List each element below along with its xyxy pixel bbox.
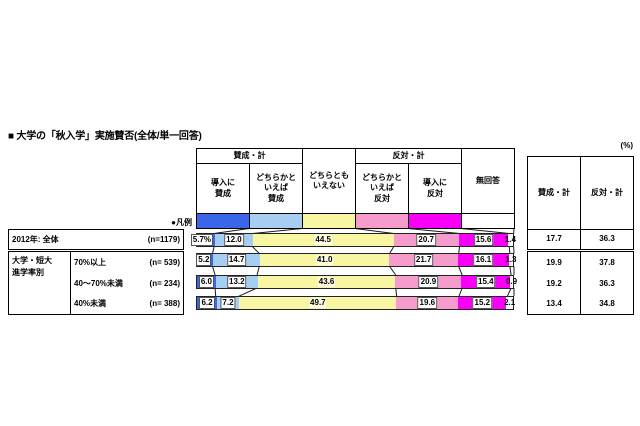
bar-segment-intro-oppose: 15.4 [461,276,510,288]
segment-value: 16.1 [474,254,494,266]
bar-segment-somewhat-oppose: 20.9 [395,276,461,288]
segment-value: 41.0 [316,255,334,265]
row-label-box-3: 40%未満(n= 388) [71,293,183,314]
bar-segment-no-answer: 1.4 [508,234,512,246]
legend-swatch-somewhat-oppose [355,213,409,229]
bar-segment-somewhat-agree: 7.2 [217,297,240,309]
row-label-group-box: 大学・短大 進学率別70%以上(n= 539)40～70%未満(n= 234)4… [8,251,184,315]
bar-segment-somewhat-agree: 13.2 [216,276,258,288]
segment-value: 15.6 [474,234,494,246]
summary-group-oppose: 37.836.334.8 [580,251,634,315]
bar-segment-neutral: 44.5 [253,234,394,246]
row-label-box-2: 40～70%未満(n= 234) [71,273,183,294]
percent-unit-note: (%) [560,141,633,150]
header-col-intro-oppose: 導入に 反対 [408,163,462,214]
segment-value: 15.4 [476,276,496,288]
bar-segment-intro-agree: 5.7% [197,234,215,246]
segment-value: 5.2 [196,254,211,266]
segment-value: 5.7% [191,234,213,246]
header-oppose-total: 反対・計 [355,148,462,164]
legend-swatch-somewhat-agree [249,213,303,229]
row-n: (n= 388) [150,299,180,308]
summary-value-oppose-1: 37.8 [581,252,633,273]
bar-segment-no-answer: 2.1 [506,297,513,309]
header-agree-total: 賛成・計 [196,148,303,164]
segment-value: 43.6 [318,277,336,287]
summary-value-oppose-0: 36.3 [580,229,634,250]
segment-value: 20.9 [419,276,439,288]
segment-value: 6.0 [199,276,214,288]
bar-segment-intro-agree: 6.0 [197,276,216,288]
summary-value-agree-0: 17.7 [527,229,581,250]
segment-value: 1.4 [504,235,517,245]
segment-value: 49.7 [309,298,327,308]
legend-swatch-intro-oppose [408,213,462,229]
segment-value: 2.1 [503,298,516,308]
segment-value: 21.7 [414,254,434,266]
header-col-intro-agree: 導入に 賛成 [196,163,250,214]
segment-value: 6.2 [199,297,214,309]
bar-segment-somewhat-oppose: 20.7 [394,234,459,246]
bar-segment-neutral: 49.7 [239,297,396,309]
bar-row-3: 6.27.249.719.615.22.1 [196,296,514,310]
bar-segment-somewhat-oppose: 21.7 [389,254,458,266]
summary-value-oppose-2: 36.3 [581,273,633,294]
row-label-box-1: 70%以上(n= 539) [71,252,183,273]
summary-value-agree-1: 19.9 [528,252,580,273]
survey-chart: ■ 大学の「秋入学」実施賛否(全体/単一回答) 賛成・計 反対・計 導入に 賛成… [0,0,640,426]
legend-swatch-no-answer [461,213,515,229]
summary-value-agree-3: 13.4 [528,293,580,314]
summary-header-oppose: 反対・計 [580,156,634,230]
bar-row-2: 6.013.243.620.915.40.9 [196,275,514,289]
summary-value-oppose-3: 34.8 [581,293,633,314]
segment-value: 13.2 [227,276,247,288]
summary-group-agree: 19.919.213.4 [527,251,581,315]
header-col-no-answer: 無回答 [461,148,515,214]
chart-title: ■ 大学の「秋入学」実施賛否(全体/単一回答) [8,127,202,142]
header-col-neutral: どちらとも いえない [302,148,356,214]
bar-segment-no-answer: 0.9 [510,276,513,288]
row-n: (n= 539) [150,258,180,267]
header-col-somewhat-oppose: どちらかと いえば 反対 [355,163,409,214]
bar-segment-intro-agree: 6.2 [197,297,217,309]
bar-segment-somewhat-agree: 12.0 [215,234,253,246]
bar-row-0: 5.7%12.044.520.715.61.4 [196,233,514,247]
bar-segment-intro-oppose: 15.6 [459,234,508,246]
segment-value: 44.5 [314,235,332,245]
legend-swatch-intro-agree [196,213,250,229]
bar-segment-somewhat-oppose: 19.6 [396,297,458,309]
bar-segment-intro-agree: 5.2 [197,254,213,266]
row-label: 40～70%未満 [74,278,123,289]
summary-value-agree-2: 19.2 [528,273,580,294]
segment-value: 12.0 [224,234,244,246]
bar-segment-neutral: 41.0 [260,254,390,266]
summary-header-agree: 賛成・計 [527,156,581,230]
bar-segment-intro-oppose: 16.1 [458,254,509,266]
legend-swatch-neutral [302,213,356,229]
row-label: 70%以上 [74,257,106,268]
group-label: 大学・短大 進学率別 [9,252,71,314]
row-n: (n= 234) [150,279,180,288]
legend-label: ●凡例 [120,217,192,228]
segment-value: 15.2 [473,297,493,309]
row-label: 2012年: 全体 [12,234,59,245]
row-n: (n=1179) [148,235,180,244]
row-label-box-total: 2012年: 全体(n=1179) [8,229,184,250]
segment-value: 20.7 [416,234,436,246]
segment-value: 7.2 [220,297,235,309]
segment-value: 1.3 [504,255,517,265]
bar-segment-intro-oppose: 15.2 [458,297,506,309]
segment-value: 19.6 [418,297,438,309]
row-label: 40%未満 [74,298,106,309]
segment-value: 14.7 [227,254,247,266]
bar-row-1: 5.214.741.021.716.11.3 [196,253,514,267]
header-col-somewhat-agree: どちらかと いえば 賛成 [249,163,303,214]
bar-segment-neutral: 43.6 [258,276,396,288]
segment-value: 0.9 [505,277,518,287]
bar-segment-somewhat-agree: 14.7 [213,254,259,266]
bar-segment-no-answer: 1.3 [509,254,513,266]
